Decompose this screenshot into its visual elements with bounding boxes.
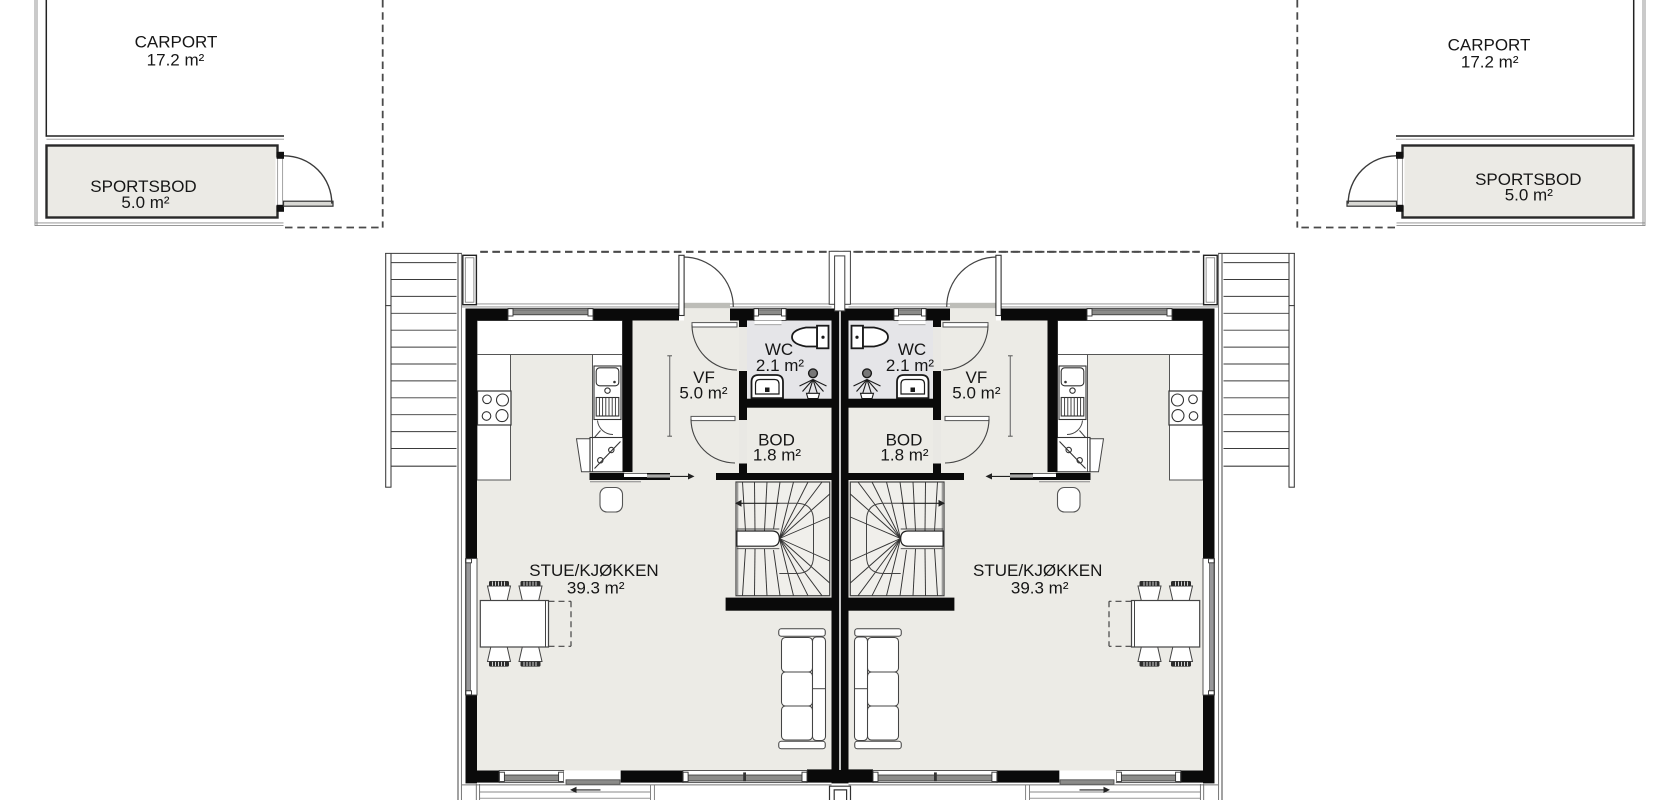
svg-text:1.8 m²: 1.8 m² (880, 445, 929, 464)
svg-text:2.1 m²: 2.1 m² (756, 356, 805, 375)
svg-text:STUE/KJØKKEN: STUE/KJØKKEN (529, 561, 658, 580)
svg-text:5.0 m²: 5.0 m² (952, 383, 1001, 402)
svg-text:5.0 m²: 5.0 m² (1505, 186, 1554, 205)
svg-text:39.3 m²: 39.3 m² (1011, 579, 1069, 598)
svg-text:39.3 m²: 39.3 m² (567, 579, 625, 598)
svg-text:5.0 m²: 5.0 m² (121, 193, 170, 212)
svg-text:2.1 m²: 2.1 m² (886, 356, 935, 375)
svg-text:1.8 m²: 1.8 m² (753, 445, 802, 464)
svg-text:CARPORT: CARPORT (135, 33, 218, 52)
svg-text:17.2 m²: 17.2 m² (147, 51, 205, 70)
svg-text:5.0 m²: 5.0 m² (679, 383, 728, 402)
svg-text:17.2 m²: 17.2 m² (1461, 53, 1519, 72)
svg-text:STUE/KJØKKEN: STUE/KJØKKEN (973, 561, 1102, 580)
